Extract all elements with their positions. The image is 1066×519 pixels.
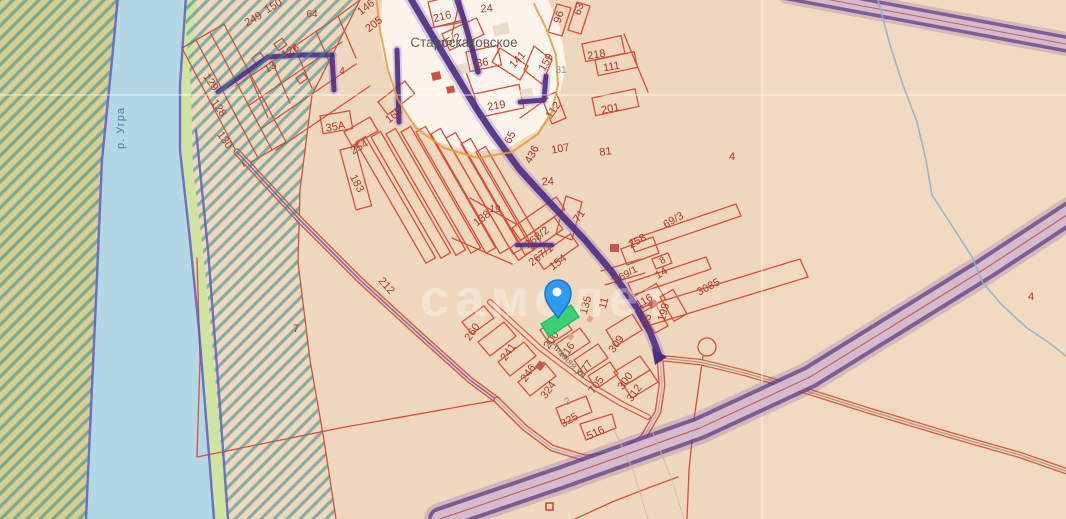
parcel-label: 3085 [695,276,722,298]
field-strip [371,132,451,259]
quarter-label: 4 [1028,291,1034,303]
cul-de-sac [698,338,716,356]
parcel-label: 246 [518,362,538,384]
parcel [630,204,741,252]
parcel [452,238,512,264]
parcel-label: 24 [541,176,554,189]
parcel-label: 24 [480,3,493,16]
parcel-label: 107 [550,142,570,157]
parcel-label: 31 [555,65,567,76]
parcel-label: 4 [339,66,345,77]
parcel-label: 81 [599,145,613,159]
survey-mark [546,503,553,510]
parcel-label: 218 [586,48,606,63]
side-street [332,55,334,90]
parcel-label: 516 [585,424,607,443]
quarter-label: 7 [293,323,299,335]
building [567,333,575,341]
parcel-label: 436 [523,144,542,166]
side-street [332,55,334,90]
parcel-label: 64 [306,9,318,20]
parcel-label: 111 [602,60,621,75]
river-label: р. Угра [115,107,127,149]
parcel-label: 96 [552,9,567,24]
settlement-label: Староскаковское [410,35,517,50]
village-core [380,0,566,152]
map-canvas[interactable]: 14620521624966375/2861411593121811111220… [0,0,1066,519]
parcel-label: 19 [489,204,501,215]
parcel [624,34,648,92]
parcel-label: 324 [538,379,558,401]
quarter-label: 4 [729,151,735,163]
parcel-label: 201 [600,101,620,117]
parcel-label: 325 [559,411,581,431]
parcel-label: 86 [475,56,489,70]
pin-dot-icon [553,288,562,297]
parcel-label: 69/3 [661,210,686,231]
map-viewport[interactable]: 14620521624966375/2861411593121811111220… [0,0,1066,519]
building [610,244,619,252]
